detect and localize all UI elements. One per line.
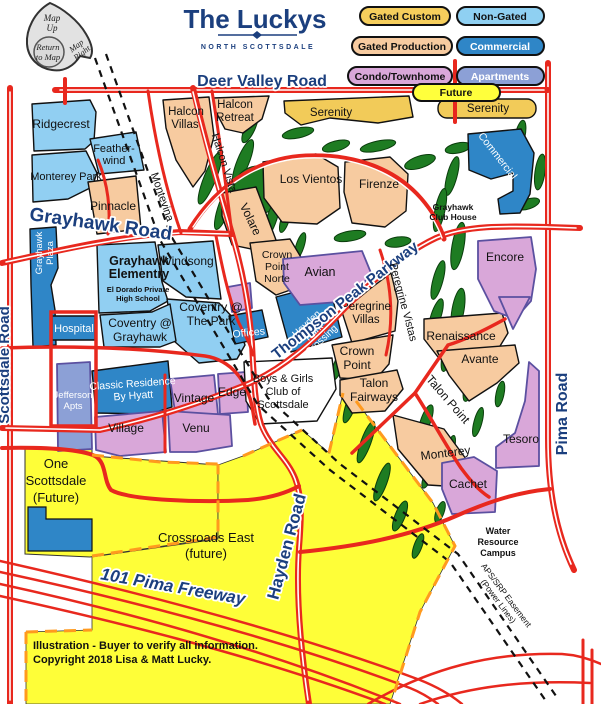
svg-text:Norte: Norte (264, 273, 290, 285)
page-subtitle: NORTH SCOTTSDALE (201, 44, 315, 51)
svg-text:Scottsdale: Scottsdale (26, 473, 87, 488)
label-monterey-park: Monterey Park (30, 171, 102, 183)
label-halcon-villas: Halcon (168, 106, 204, 118)
svg-text:Grayhawk: Grayhawk (34, 231, 45, 274)
label-cachet: Cachet (449, 477, 488, 491)
label-avante: Avante (461, 352, 498, 366)
label-grayhawk-club-house: Grayhawk (433, 202, 474, 212)
label-coventry-grayhawk: Coventry @ (108, 316, 172, 330)
svg-text:Point: Point (265, 261, 289, 273)
svg-text:Elementry: Elementry (109, 267, 169, 281)
svg-text:Commercial: Commercial (470, 41, 530, 53)
label-el-dorado: El Dorado Private (107, 285, 170, 294)
svg-text:Point: Point (343, 358, 371, 372)
label-los-vientos: Los Vientos (280, 172, 343, 186)
label-village: Village (108, 421, 144, 435)
label-scottsdale-road: Scottsdale Road (0, 306, 13, 424)
label-pima-road: Pima Road (554, 373, 571, 456)
label-crown-point-norte: Crown (262, 249, 293, 261)
label-pinnacle: Pinnacle (90, 199, 136, 213)
svg-text:Plaza: Plaza (45, 240, 56, 264)
svg-text:Apts: Apts (63, 401, 82, 412)
return-to-map-link[interactable]: Return (35, 42, 59, 52)
label-ridgecrest: Ridgecrest (32, 117, 90, 131)
label-firenze: Firenze (359, 177, 399, 191)
label-renaissance: Renaissance (426, 329, 496, 343)
svg-text:High School: High School (116, 294, 160, 303)
label-water-resource: Water (486, 526, 511, 536)
svg-text:Apartments: Apartments (471, 71, 530, 83)
page-title: The Luckys (183, 4, 326, 34)
label-grayhawk-elementry: Grayhawk (109, 254, 169, 268)
svg-text:Fairways: Fairways (350, 390, 398, 404)
label-coventry-the-park: Coventry @ (179, 300, 243, 314)
label-avian: Avian (304, 265, 335, 279)
label-edge: Edge (218, 385, 246, 399)
label-boys-girls: Boys & Girls (253, 373, 314, 385)
svg-text:(Future): (Future) (33, 490, 79, 505)
svg-text:Villas: Villas (171, 119, 199, 131)
label-serenity-east: Serenity (467, 103, 509, 115)
disclaimer-line1: Illustration - Buyer to verify all infor… (33, 640, 258, 652)
disclaimer-line2: Copyright 2018 Lisa & Matt Lucky. (33, 654, 211, 666)
svg-text:Scottsdale: Scottsdale (257, 399, 308, 411)
label-featherwind: Feather- (93, 143, 135, 155)
svg-text:Retreat: Retreat (216, 112, 255, 124)
svg-text:Gated Custom: Gated Custom (369, 11, 441, 23)
svg-text:Resource: Resource (477, 537, 518, 547)
label-deer-valley-road: Deer Valley Road (197, 73, 327, 90)
svg-text:Campus: Campus (480, 548, 516, 558)
svg-text:Club of: Club of (266, 386, 302, 398)
svg-text:wind: wind (102, 155, 126, 167)
label-encore: Encore (486, 250, 524, 264)
title-block: The Luckys NORTH SCOTTSDALE (183, 4, 326, 51)
label-serenity-north: Serenity (310, 107, 352, 119)
label-jefferson-apts: Jefferson (54, 390, 93, 401)
label-vintage: Vintage (174, 391, 215, 405)
label-halcon-retreat: Halcon (217, 99, 253, 111)
map-up-link[interactable]: Map (43, 13, 61, 23)
label-one-scottsdale: One (44, 456, 69, 471)
label-venu: Venu (182, 421, 209, 435)
svg-text:Future: Future (440, 87, 473, 99)
label-talon-fairways: Talon (360, 376, 389, 390)
svg-text:Club House: Club House (429, 212, 476, 222)
svg-text:The Park: The Park (187, 314, 237, 328)
label-tesoro: Tesoro (503, 432, 539, 446)
label-crown-point: Crown (340, 344, 375, 358)
svg-text:Non-Gated: Non-Gated (473, 11, 527, 23)
label-crossroads-east: Crossroads East (158, 530, 254, 545)
svg-text:(future): (future) (185, 546, 227, 561)
label-hospital: Hospital (54, 323, 94, 335)
svg-text:Villas: Villas (352, 314, 380, 326)
svg-text:Condo/Townhome: Condo/Townhome (355, 71, 446, 83)
svg-text:Up[interactable]: Up (47, 23, 58, 33)
svg-text:Gated Production: Gated Production (358, 41, 446, 53)
luckys-map: Ridgecrest Feather- wind Monterey Park P… (0, 0, 601, 704)
svg-text:Grayhawk: Grayhawk (113, 330, 168, 344)
svg-text:to Map[interactable]: to Map (36, 52, 60, 62)
